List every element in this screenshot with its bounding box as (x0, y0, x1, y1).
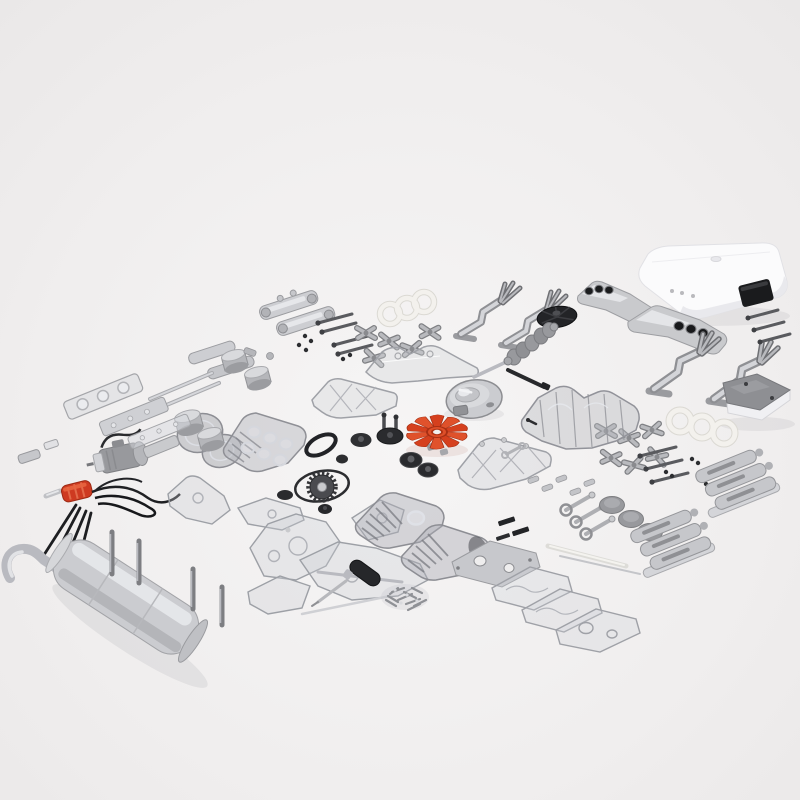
black-pulley-small (336, 455, 348, 464)
pile-glint (393, 588, 396, 591)
gear-hub (318, 483, 327, 492)
tee-bolt-head (526, 418, 530, 422)
cover-stud (480, 442, 485, 447)
manifold-port (595, 285, 603, 293)
pulley-hub (425, 466, 431, 472)
head-bore (248, 427, 261, 438)
screw-head (649, 479, 654, 484)
head-bore (242, 443, 255, 454)
conrod-small-end (609, 516, 615, 522)
sump-bolt (744, 382, 748, 386)
crank-journal (550, 323, 558, 331)
bolt-head (348, 353, 352, 357)
sump-bolt (770, 396, 774, 400)
black-cap (318, 504, 332, 514)
scene-svg (0, 0, 800, 800)
head-bore (258, 449, 271, 460)
pile-glint (405, 593, 408, 596)
screw-head (643, 466, 648, 471)
pile-glint (415, 599, 418, 602)
fan-center-hole (432, 429, 442, 435)
bolt-head (696, 461, 700, 465)
head-bore (264, 433, 277, 444)
shroud-dot (691, 294, 695, 298)
manifold-port (605, 286, 613, 294)
block-bore (408, 512, 424, 525)
black-oval-grommet (277, 490, 293, 500)
cover-stud (502, 438, 507, 443)
shroud-dot (680, 291, 684, 295)
plate-hole (504, 564, 514, 573)
cover-stud (286, 528, 291, 533)
disc-mount-block (453, 405, 468, 416)
screw-head (335, 351, 340, 356)
head-bore (274, 455, 287, 466)
manifold-port (585, 287, 593, 295)
bolt-head (341, 357, 345, 361)
shroud-hole (711, 257, 721, 262)
piston-top (623, 512, 639, 522)
bolt-head (690, 457, 694, 461)
cap-hole (323, 506, 327, 510)
pulley-hub (408, 456, 415, 463)
plate-screw (456, 566, 460, 570)
conrod-small-end (589, 492, 595, 498)
manifold-port (674, 322, 684, 331)
screw-head (315, 320, 320, 325)
plate-hole (474, 556, 486, 566)
screws-pile (381, 584, 429, 610)
piston-top (604, 498, 620, 508)
black-disc (351, 433, 372, 447)
bolt-head (664, 470, 668, 474)
product-photo (0, 0, 800, 800)
screw-head (752, 328, 757, 333)
motor-shaft (87, 464, 94, 465)
crank-journal (504, 357, 512, 365)
head-bore (280, 439, 293, 450)
small-bearing (267, 353, 274, 360)
disc-hub (358, 436, 364, 442)
bolt-head (670, 474, 674, 478)
flange-center (387, 432, 393, 438)
bolt-head (303, 334, 307, 338)
pile-glint (399, 601, 402, 604)
stud-top (394, 415, 399, 420)
screw-head (637, 453, 642, 458)
shroud-dot (670, 289, 674, 293)
screw-head (319, 329, 324, 334)
stud-top (382, 413, 387, 418)
screw-head (331, 342, 336, 347)
bolt-head (304, 348, 308, 352)
cross-hub (364, 331, 369, 336)
plate-screw (528, 558, 532, 562)
bolt-head (309, 339, 313, 343)
manifold-port (686, 325, 696, 334)
screw-head (758, 340, 763, 345)
screw-head (746, 316, 751, 321)
bolt-head (297, 343, 301, 347)
